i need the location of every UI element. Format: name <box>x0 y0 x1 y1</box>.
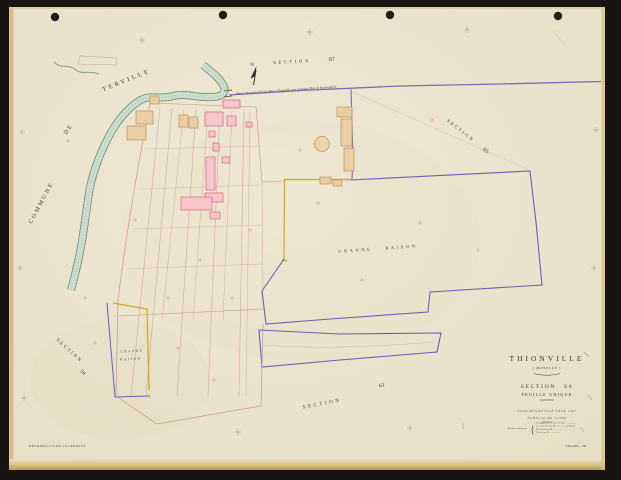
works-line-4: Vérifié par M. ———— <box>536 431 561 434</box>
scanned-cadastral-map: COMMUNE DE TERVILLE N SECTION 67 SECTION… <box>0 0 621 480</box>
paper-sheet <box>9 7 605 470</box>
map-canvas: COMMUNE DE TERVILLE N SECTION 67 SECTION… <box>0 0 621 480</box>
title-plan-note: PLAN RENOUVELÉ POUR 1947 <box>517 408 576 413</box>
footer-left-imprint: REPRODUCTION INTERDITE <box>29 444 86 448</box>
title-scale-note: ÉCHELLE DE 1/2000 <box>527 415 566 420</box>
registration-dot <box>554 12 562 20</box>
registration-dot <box>386 11 394 19</box>
title-section: SECTION 66 <box>521 384 574 390</box>
paper-right-edge <box>602 7 606 470</box>
paper-bottom-edge <box>9 459 605 470</box>
label-section67-num: 67 <box>329 57 335 63</box>
paper-left-edge <box>9 7 14 470</box>
registration-dot <box>219 11 227 19</box>
title-commune: THIONVILLE <box>510 354 585 363</box>
paper-top-edge <box>9 7 605 9</box>
label-north: N <box>250 63 254 68</box>
title-department: ( MOSELLE ) <box>533 366 561 370</box>
footer-right-imprint: Thionville — 66 <box>566 444 586 448</box>
registration-dot <box>51 13 59 21</box>
title-works-label: Travaux cadastraux <box>507 427 527 430</box>
tank-circle <box>315 137 330 152</box>
title-sheet: FEUILLE UNIQUE <box>522 392 573 397</box>
works-brace: { <box>530 425 535 436</box>
